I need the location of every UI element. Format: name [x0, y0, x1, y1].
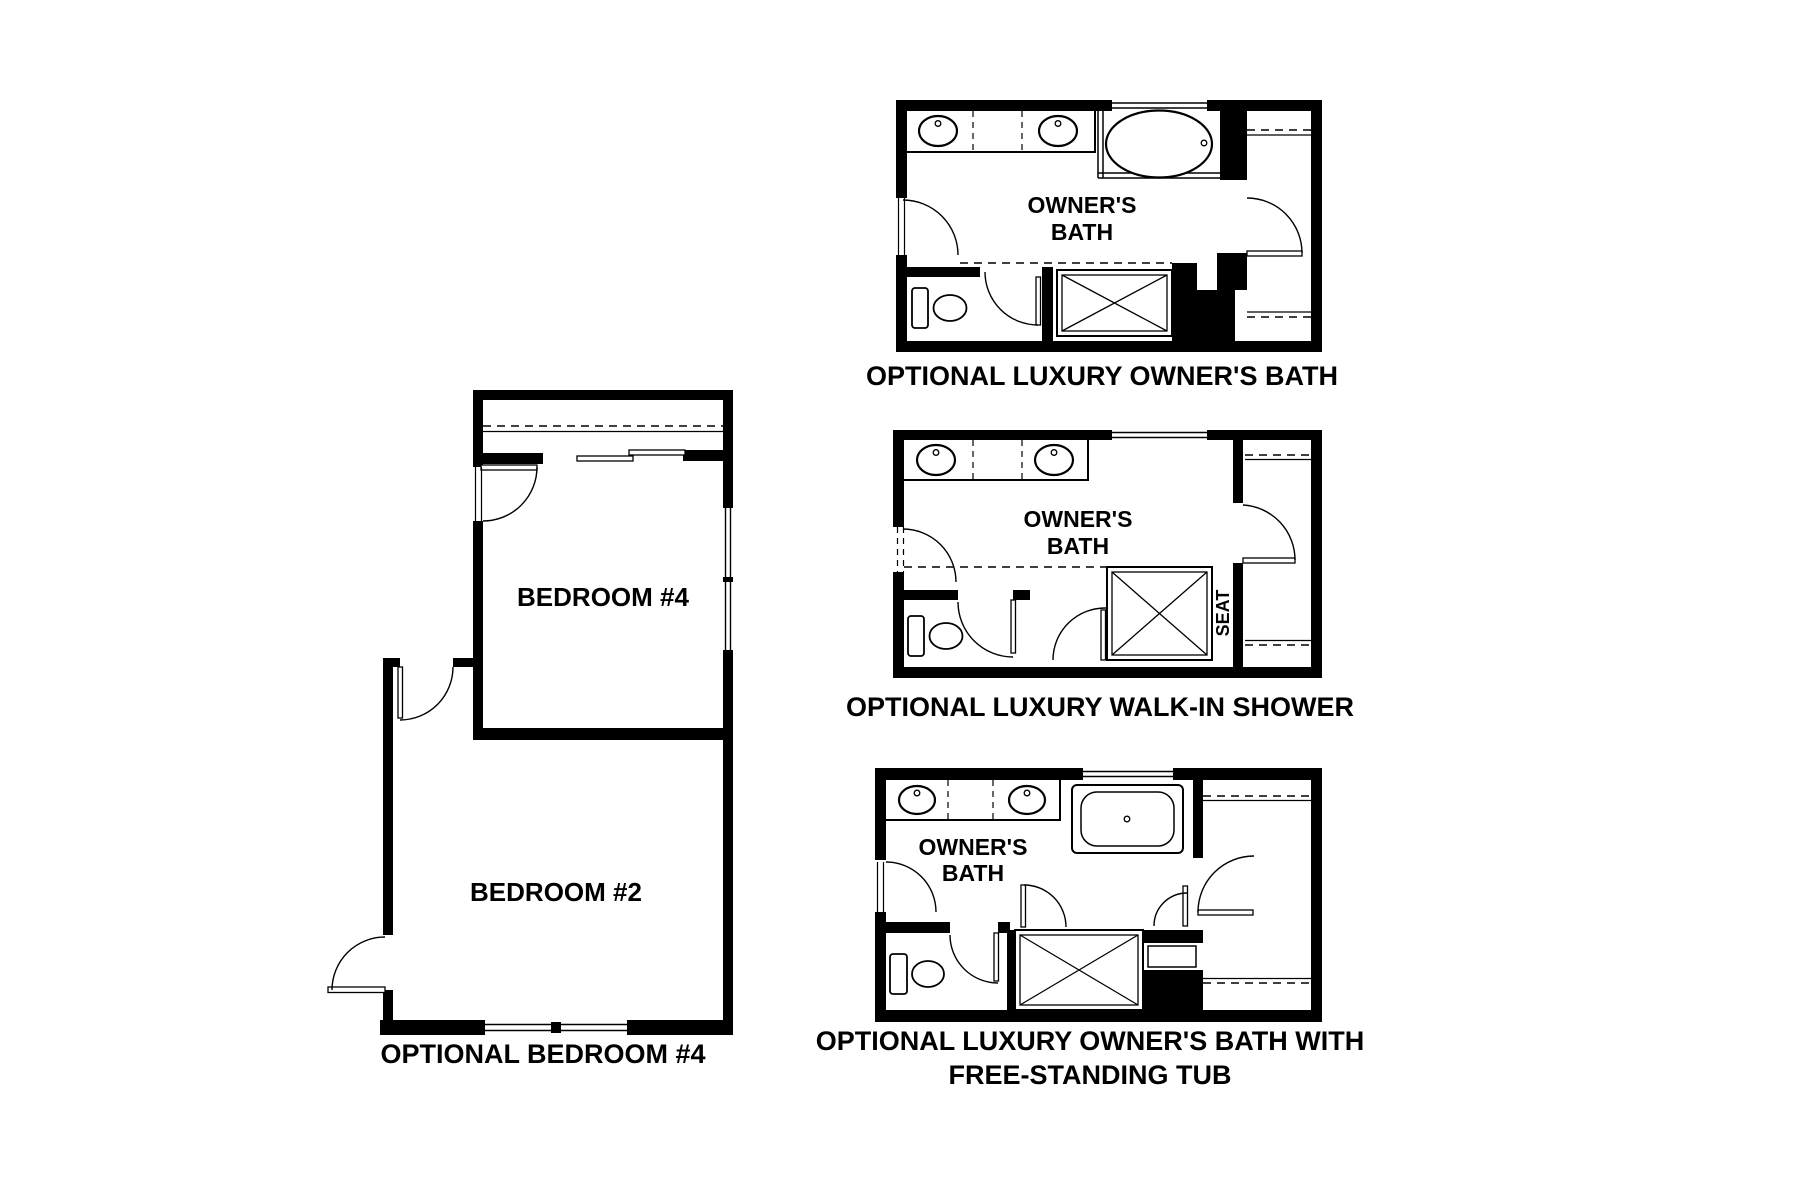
- floor-plan-sheet: OWNER'S BATH OPTIONAL LUXURY OWNER'S BAT…: [0, 0, 1800, 1200]
- door-jamb: [878, 862, 884, 912]
- wall-segment: [380, 1020, 485, 1035]
- room-label: OWNER'S: [1028, 192, 1137, 218]
- wall-segment: [893, 572, 904, 678]
- plan-freestanding-tub-bath: OWNER'S BATH OPTIONAL LUXURY OWNER'S BAT…: [816, 768, 1364, 1090]
- room-label: OWNER'S: [1024, 506, 1133, 532]
- door-jamb: [476, 467, 482, 521]
- shower-x: [1020, 935, 1138, 1005]
- hall-door: [1021, 885, 1066, 927]
- entry-door: [878, 862, 937, 912]
- wall-segment: [1311, 100, 1322, 352]
- door-leaf: [1011, 600, 1016, 653]
- wall-segment: [1143, 970, 1203, 1010]
- wall-segment: [896, 100, 907, 198]
- wall-segment: [1233, 563, 1243, 667]
- tub-drain-dot: [1124, 816, 1130, 822]
- door-arc: [903, 529, 956, 582]
- walkin-shower: SEAT: [1053, 567, 1233, 660]
- vanity: [904, 440, 1088, 480]
- closet: [1243, 455, 1311, 645]
- wall-segment: [473, 390, 733, 400]
- window: [1112, 103, 1207, 108]
- sliding-door-panel: [577, 456, 633, 461]
- door-arc: [1198, 856, 1254, 912]
- toilet-room: [908, 600, 1016, 657]
- door-leaf: [1198, 910, 1253, 915]
- wall-segment: [483, 453, 543, 464]
- wall-segment: [1311, 768, 1322, 1022]
- wall-segment: [1233, 440, 1243, 503]
- plan-luxury-owners-bath: OWNER'S BATH OPTIONAL LUXURY OWNER'S BAT…: [866, 100, 1338, 391]
- wall-segment: [893, 430, 1112, 440]
- window-mullion: [551, 1022, 561, 1033]
- wall-segment: [896, 100, 1112, 111]
- wall-segment: [627, 1020, 733, 1035]
- plan-caption: OPTIONAL BEDROOM #4: [380, 1039, 705, 1069]
- wall-segment: [875, 768, 886, 860]
- wall-segment: [473, 390, 483, 467]
- entry-door: [899, 198, 959, 255]
- room-label: BEDROOM #2: [470, 877, 642, 907]
- vanity: [907, 111, 1095, 152]
- closet-shelf-line: [1245, 460, 1311, 641]
- room-label: BATH: [1047, 533, 1109, 559]
- plan-optional-bedroom-4: BEDROOM #4 BEDROOM #2 OPTIONAL BEDROOM #…: [328, 390, 733, 1069]
- wall-segment: [383, 658, 400, 667]
- toilet-bowl: [912, 961, 944, 987]
- wall-segment: [683, 450, 723, 461]
- door-arc: [1154, 893, 1187, 926]
- door-arc: [1024, 885, 1066, 927]
- room-label: BEDROOM #4: [517, 582, 689, 612]
- window: [1083, 772, 1173, 777]
- wall-segment: [1013, 590, 1030, 600]
- wall-segment: [1173, 768, 1322, 780]
- door-arc: [1247, 198, 1302, 253]
- wall-segment: [723, 390, 733, 508]
- wall-segment: [1007, 930, 1015, 1010]
- toilet-tank: [912, 288, 928, 328]
- tub-inner: [1081, 792, 1174, 846]
- door-leaf: [1247, 251, 1302, 256]
- door-leaf: [1243, 558, 1295, 563]
- shower: [1057, 270, 1172, 336]
- closet-shelf-line: [1203, 801, 1311, 979]
- toilet-tank: [890, 954, 907, 994]
- door-leaf: [994, 933, 999, 981]
- wall-segment: [1193, 780, 1203, 858]
- door-leaf: [1021, 885, 1026, 927]
- wall-segment: [904, 590, 958, 600]
- shower-door-arc: [1053, 608, 1106, 660]
- door-leaf: [1183, 886, 1188, 926]
- bathtub: [1106, 111, 1212, 178]
- door-arc: [903, 200, 958, 255]
- window: [1112, 433, 1207, 438]
- sliding-door-panel: [629, 450, 685, 455]
- wall-segment: [383, 990, 393, 1020]
- opening-dashed-jamb: [898, 527, 904, 572]
- room-label: OWNER'S: [919, 834, 1028, 860]
- closet-shelf-dashed: [1245, 455, 1311, 645]
- shower-niche: [1148, 946, 1196, 967]
- plan-caption-line1: OPTIONAL LUXURY OWNER'S BATH WITH: [816, 1026, 1364, 1056]
- wall-segment: [383, 667, 393, 935]
- wall-segment: [893, 430, 904, 527]
- door-jamb: [899, 198, 905, 255]
- door-arc: [1243, 505, 1295, 560]
- door-leaf: [328, 987, 385, 993]
- room-label: BATH: [1051, 219, 1113, 245]
- wall-segment: [1217, 253, 1247, 290]
- wall-segment: [723, 577, 733, 582]
- wall-segment: [1220, 100, 1247, 180]
- bottom-window: [485, 1022, 627, 1033]
- closet: [476, 426, 724, 521]
- wall-segment: [1143, 930, 1203, 943]
- wall-segment: [907, 267, 980, 277]
- toilet-room: [890, 933, 999, 994]
- door-arc: [950, 935, 998, 983]
- wall-segment: [875, 768, 1083, 780]
- vanity-divider: [973, 111, 1022, 152]
- door-leaf: [1036, 277, 1041, 325]
- wall-segment: [1042, 267, 1053, 341]
- room-label: BATH: [942, 860, 1004, 886]
- closet-shelf-line: [1247, 135, 1311, 312]
- entry-opening: [898, 527, 957, 582]
- garden-tub: [1098, 111, 1220, 179]
- wall-segment: [893, 667, 1322, 678]
- toilet-tank: [908, 616, 924, 656]
- wall-segment: [896, 255, 907, 352]
- wall-segment: [1207, 430, 1322, 440]
- door-arc: [886, 862, 936, 912]
- wall-segment: [723, 650, 733, 1035]
- vanity-divider: [948, 780, 993, 820]
- walls: [380, 390, 733, 1035]
- door-arc: [483, 467, 537, 521]
- closet: [1154, 796, 1311, 983]
- plan-caption: OPTIONAL LUXURY OWNER'S BATH: [866, 361, 1338, 391]
- door-arc: [332, 937, 385, 990]
- vanity: [886, 780, 1060, 820]
- door-arc: [400, 667, 453, 720]
- shower-door-leaf: [1101, 610, 1106, 660]
- plan-caption: OPTIONAL LUXURY WALK-IN SHOWER: [846, 692, 1354, 722]
- plan-luxury-walkin-shower: SEAT OWNER'S BATH OPTIONAL LUXURY WALK-I…: [846, 430, 1354, 722]
- wall-segment: [453, 658, 473, 667]
- closet-shelf-dashed: [1247, 130, 1311, 317]
- wall-segment: [1311, 430, 1322, 678]
- closet-shelf-dashed: [1203, 796, 1311, 983]
- toilet-room: [912, 272, 1041, 328]
- toilet-bowl: [934, 295, 967, 321]
- closet: [1247, 130, 1311, 317]
- door-leaf: [481, 465, 537, 470]
- toilet-bowl: [930, 623, 963, 649]
- shower-x: [1062, 275, 1167, 331]
- bedroom2-entry-door: [398, 667, 453, 720]
- walls: [875, 768, 1322, 1022]
- wall-segment: [1197, 290, 1235, 341]
- wall-segment: [875, 912, 886, 1022]
- freestanding-tub: [1072, 785, 1183, 853]
- door-arc: [985, 272, 1038, 325]
- wall-segment: [896, 341, 1322, 352]
- wall-segment: [875, 1010, 1322, 1022]
- door-arc: [958, 602, 1013, 657]
- plan-caption-line2: FREE-STANDING TUB: [949, 1060, 1232, 1090]
- shower-x: [1112, 572, 1207, 655]
- bedroom2-exterior-door: [328, 937, 385, 993]
- wall-segment: [473, 521, 483, 728]
- seat-label: SEAT: [1213, 590, 1233, 637]
- door-leaf: [398, 667, 403, 718]
- wall-segment: [886, 922, 950, 933]
- vanity-divider: [973, 440, 1022, 480]
- floor-plan-drawing: OWNER'S BATH OPTIONAL LUXURY OWNER'S BAT…: [0, 0, 1800, 1200]
- wall-segment: [473, 728, 733, 740]
- wall-segment: [1172, 263, 1197, 341]
